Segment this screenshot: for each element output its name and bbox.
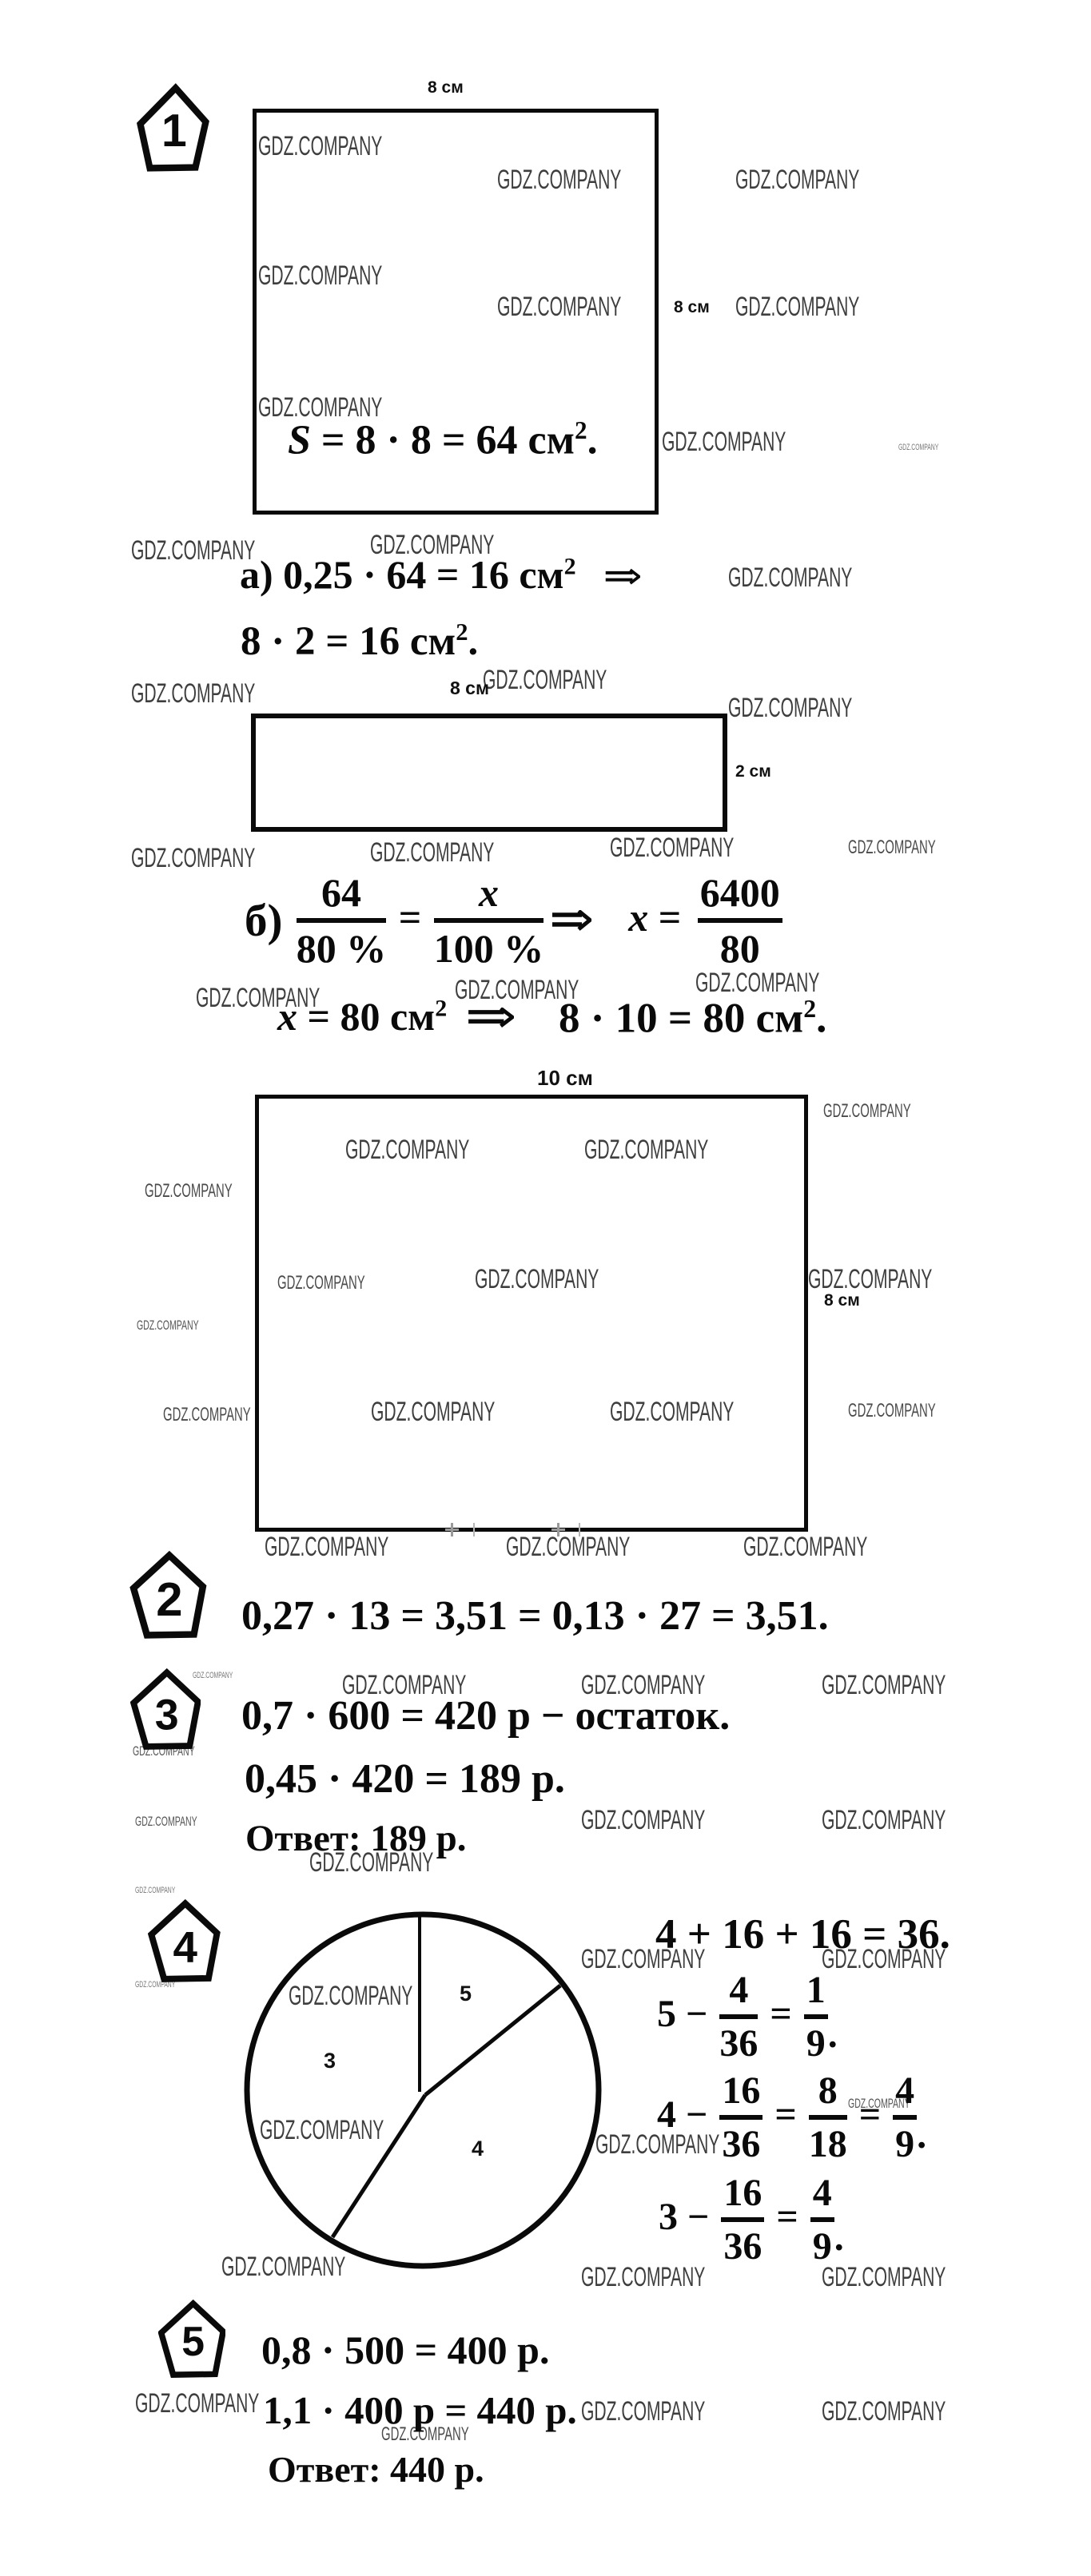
svg-text:1: 1 <box>161 105 187 157</box>
svg-text:2: 2 <box>156 1572 182 1626</box>
svg-text:5: 5 <box>181 2318 205 2364</box>
svg-text:4: 4 <box>173 1922 198 1972</box>
svg-text:3: 3 <box>155 1691 179 1739</box>
